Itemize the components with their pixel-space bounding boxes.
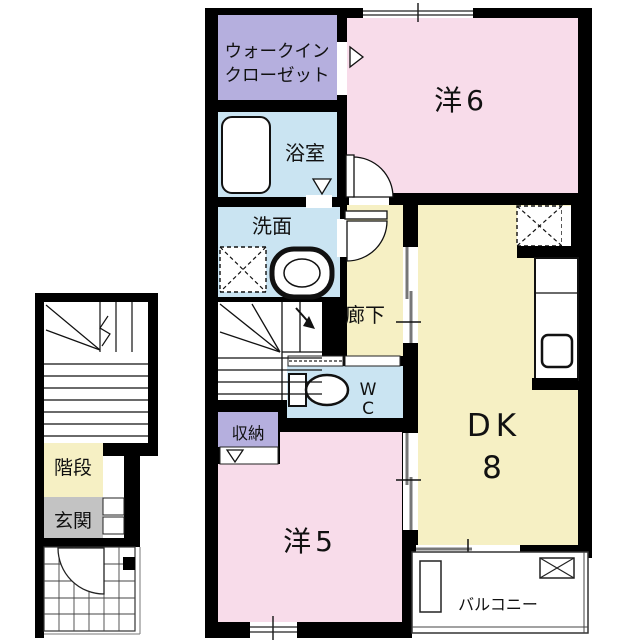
balcony (412, 552, 588, 633)
western5-label: 洋5 (283, 525, 337, 558)
bathtub (222, 117, 270, 193)
entrance-label: 玄関 (54, 510, 92, 532)
main-plan: ウォークイン クローゼット 浴室 洗面 廊下 W C 収納 洋6 洋5 DK 8… (205, 3, 592, 640)
kitchen-wall-upper (517, 246, 578, 258)
water-heater (420, 561, 441, 612)
washroom-label: 洗面 (252, 214, 292, 238)
toilet (289, 374, 348, 406)
stairs-label: 階段 (54, 457, 92, 479)
balcony-drain-box (540, 558, 574, 578)
wc-label-1: W (360, 380, 377, 400)
bathroom-door-opening (306, 195, 332, 208)
walk-in-closet-label-2: クローゼット (225, 66, 330, 86)
wash-basin (272, 249, 332, 297)
dk-label-1: DK (467, 408, 521, 444)
entrance-door-panel-2 (103, 517, 124, 534)
washroom-door-opening (337, 219, 347, 257)
entrance-door-panel-1 (103, 498, 124, 515)
western6-label: 洋6 (434, 84, 488, 117)
washer-space (220, 247, 266, 292)
kitchen-wall-post (571, 202, 578, 247)
kitchen-sink (542, 335, 572, 367)
closet-door-opening (337, 42, 347, 95)
bathroom-label: 浴室 (285, 141, 325, 165)
storage-label: 収納 (232, 424, 265, 443)
dk-label-2: 8 (482, 450, 502, 486)
storage-folding-door (220, 447, 278, 464)
kitchen-counter (535, 258, 578, 380)
entrance-bottom-wall (44, 538, 124, 547)
entrance-right-wall (124, 443, 140, 547)
walk-in-closet-label-1: ウォークイン (225, 42, 330, 62)
entrance-left-wall (35, 293, 44, 638)
porch-post (123, 557, 135, 570)
wc-door-opening (345, 356, 400, 366)
refrigerator-space (517, 206, 562, 246)
kitchen-wall-lower (532, 378, 578, 390)
kitchen-gap (562, 206, 572, 246)
floorplan-page: ウォークイン クローゼット 浴室 洗面 廊下 W C 収納 洋6 洋5 DK 8… (0, 0, 640, 640)
entrance-plan: 階段 玄関 (35, 293, 158, 638)
balcony-label: バルコニー (458, 595, 538, 614)
entrance-landing (103, 456, 124, 497)
floorplan-drawing: ウォークイン クローゼット 浴室 洗面 廊下 W C 収納 洋6 洋5 DK 8… (0, 0, 640, 640)
entrance-porch (44, 547, 140, 634)
hallway-label: 廊下 (345, 303, 385, 327)
wc-label-2: C (362, 399, 374, 419)
